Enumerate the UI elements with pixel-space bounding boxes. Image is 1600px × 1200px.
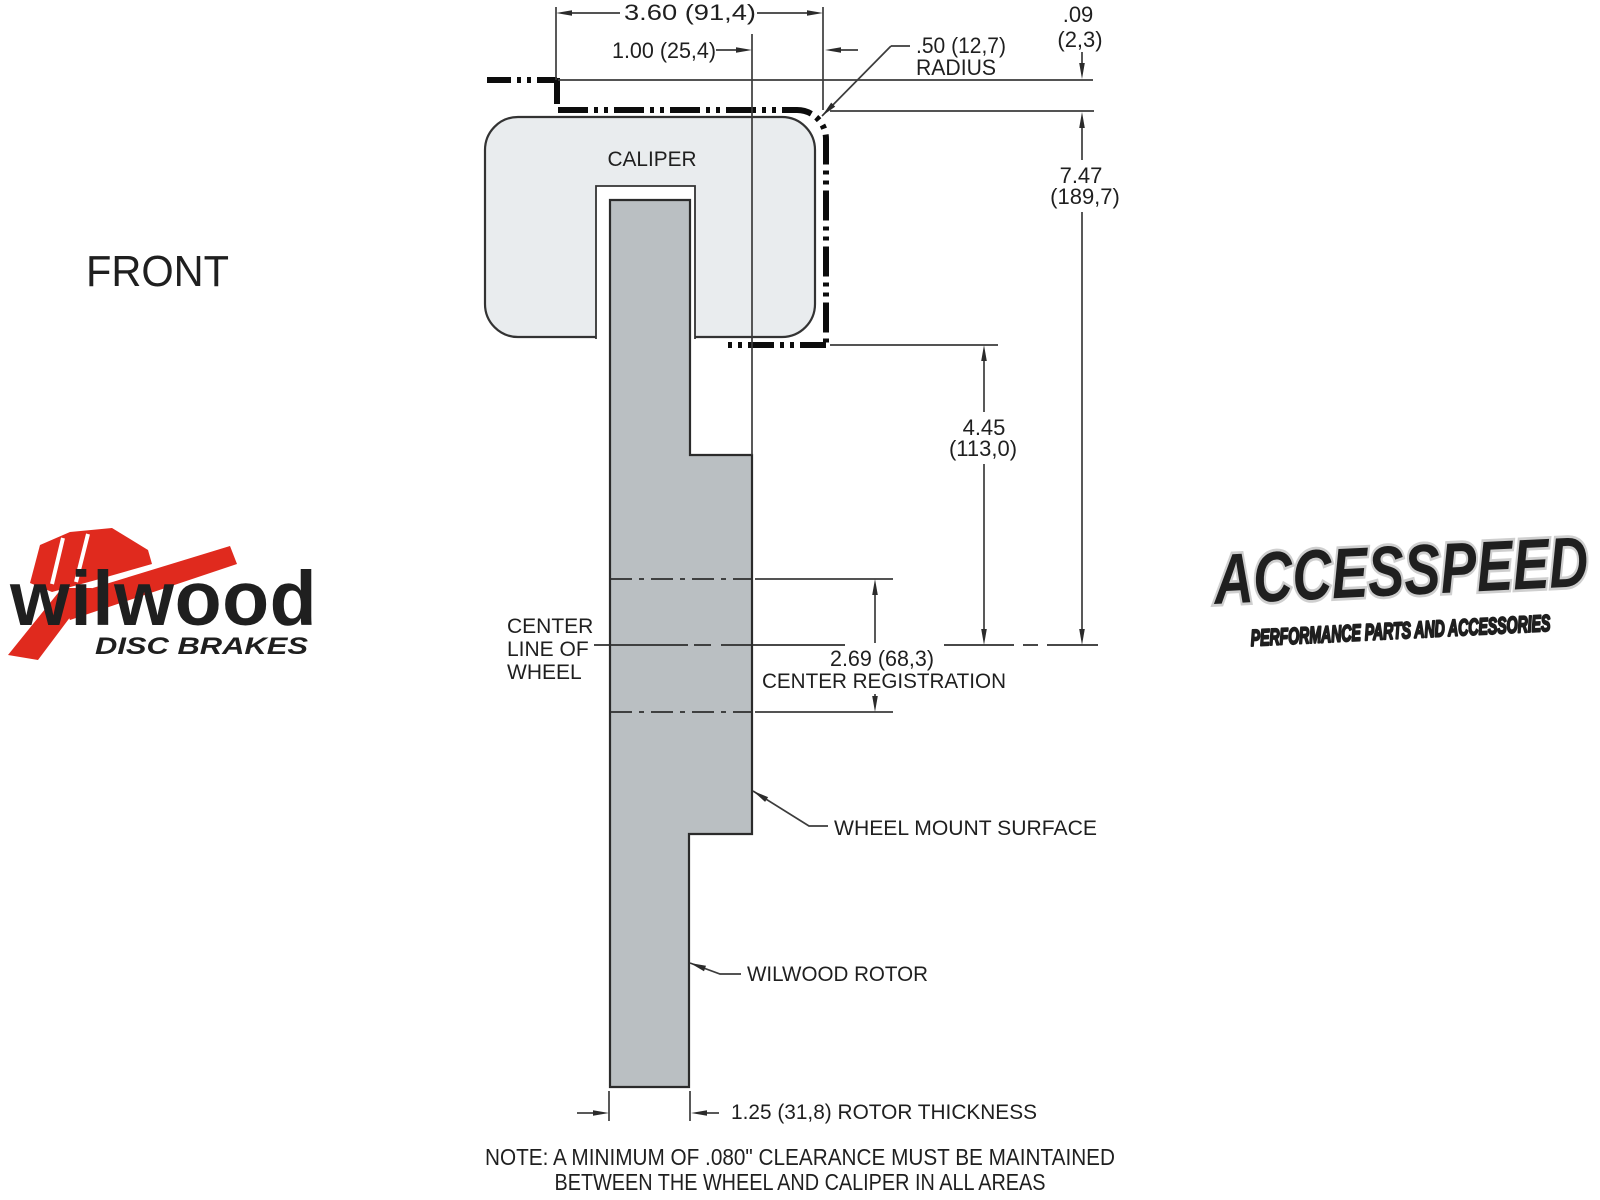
svg-text:WILWOOD ROTOR: WILWOOD ROTOR	[747, 963, 928, 986]
svg-text:WHEEL MOUNT SURFACE: WHEEL MOUNT SURFACE	[834, 817, 1097, 840]
svg-text:FRONT: FRONT	[86, 247, 229, 296]
svg-text:CALIPER: CALIPER	[608, 148, 697, 171]
svg-text:(113,0): (113,0)	[949, 436, 1017, 461]
svg-text:NOTE: A MINIMUM OF .080" CLEAR: NOTE: A MINIMUM OF .080" CLEARANCE MUST …	[485, 1144, 1115, 1170]
svg-text:.09: .09	[1063, 2, 1094, 27]
svg-text:CENTER REGISTRATION: CENTER REGISTRATION	[762, 670, 1006, 693]
svg-text:2.69 (68,3): 2.69 (68,3)	[830, 646, 934, 671]
svg-text:LINE OF: LINE OF	[507, 638, 589, 661]
svg-text:CENTER: CENTER	[507, 615, 593, 638]
svg-text:1.25 (31,8) ROTOR THICKNESS: 1.25 (31,8) ROTOR THICKNESS	[731, 1101, 1037, 1124]
svg-text:3.60 (91,4): 3.60 (91,4)	[624, 0, 756, 25]
svg-text:wilwood: wilwood	[9, 556, 317, 642]
svg-text:(2,3): (2,3)	[1057, 27, 1102, 52]
svg-text:1.00 (25,4): 1.00 (25,4)	[612, 38, 716, 63]
svg-text:DISC BRAKES: DISC BRAKES	[95, 633, 308, 660]
svg-text:BETWEEN THE WHEEL AND CALIPER: BETWEEN THE WHEEL AND CALIPER IN ALL ARE…	[555, 1169, 1046, 1195]
svg-text:(189,7): (189,7)	[1050, 184, 1120, 209]
svg-text:RADIUS: RADIUS	[916, 55, 996, 80]
svg-text:WHEEL: WHEEL	[507, 661, 582, 684]
